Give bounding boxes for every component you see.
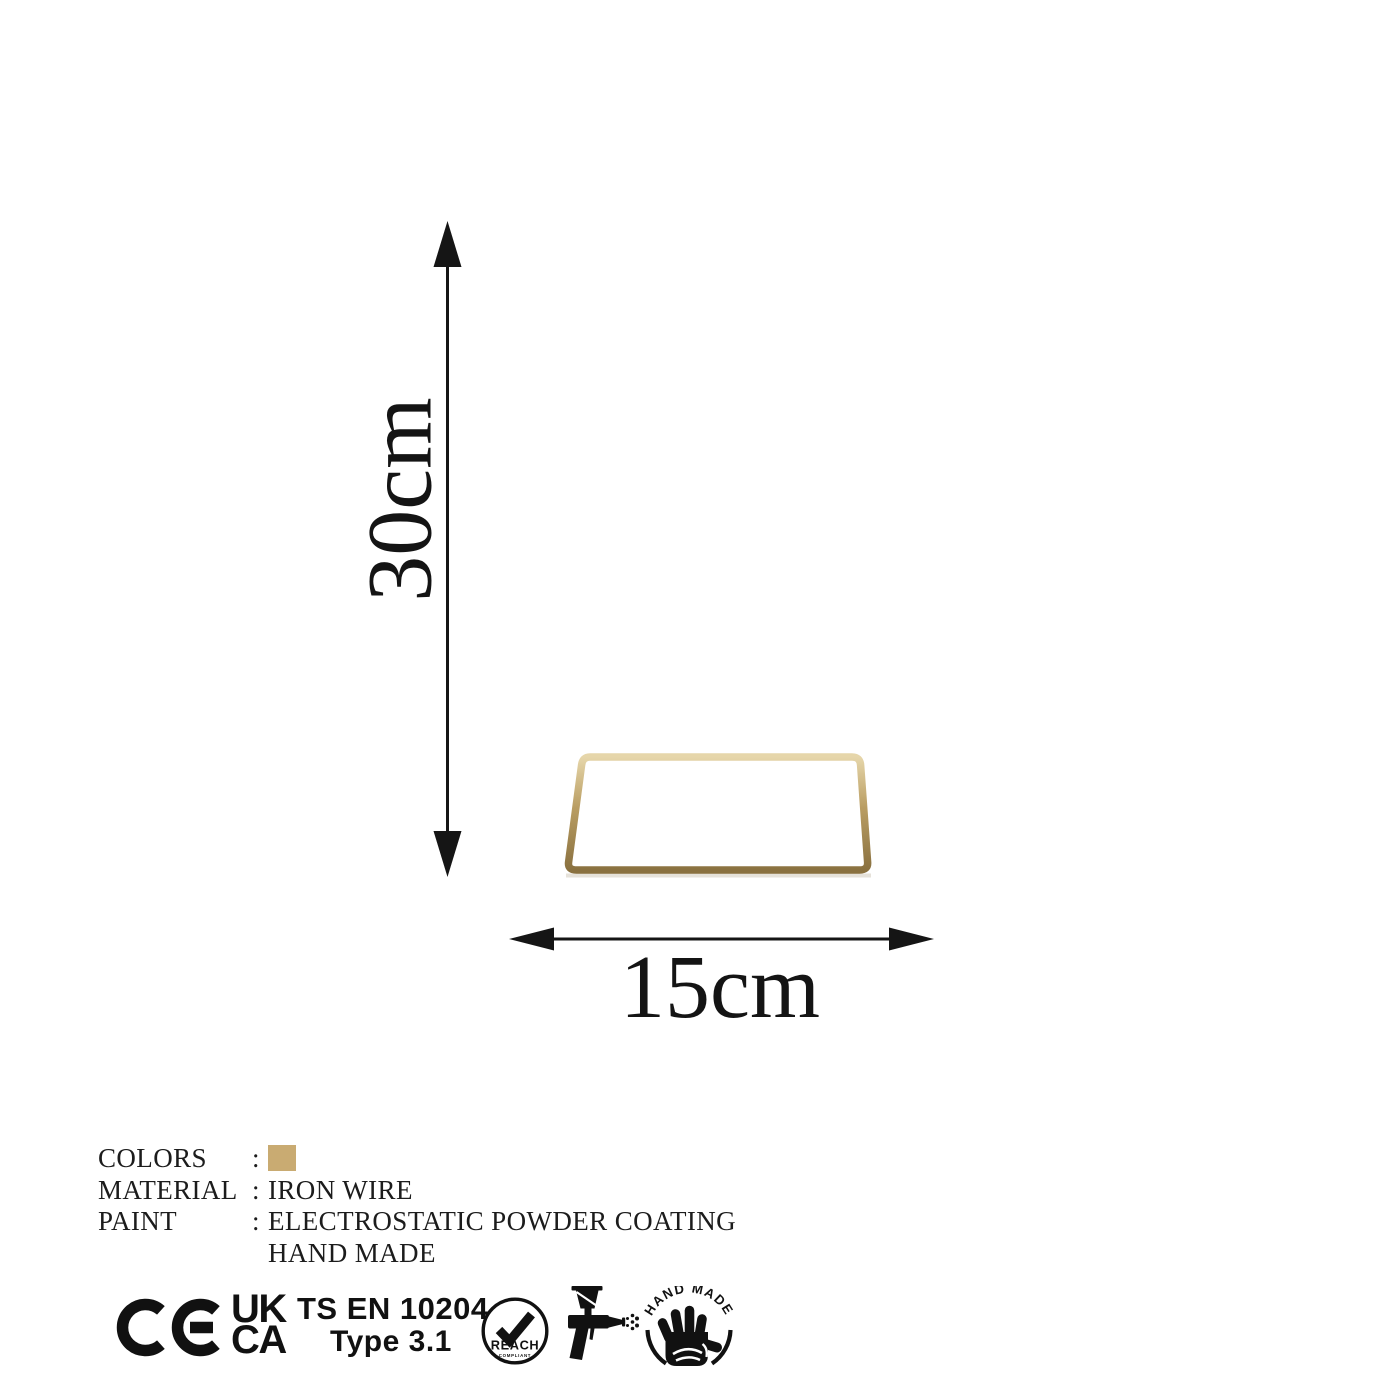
spec-row-material: MATERIAL : IRON WIRE: [98, 1175, 736, 1207]
spray-gun-icon: [557, 1285, 639, 1369]
ukca-line2: CA: [231, 1325, 286, 1356]
spec-colon: :: [252, 1175, 268, 1207]
spec-value-colors: [268, 1143, 736, 1175]
spec-value-paint: ELECTROSTATIC POWDER COATING: [268, 1206, 736, 1238]
spec-colon: :: [252, 1143, 268, 1175]
reach-compliant-badge: REACH COMPLIANT: [481, 1297, 549, 1365]
spec-label: PAINT: [98, 1206, 252, 1238]
spec-row-paint: PAINT : ELECTROSTATIC POWDER COATING: [98, 1206, 736, 1238]
color-swatch-gold: [268, 1145, 296, 1171]
reach-sub-label: COMPLIANT: [499, 1353, 531, 1358]
spec-block: COLORS : MATERIAL : IRON WIRE PAINT : EL…: [98, 1143, 736, 1269]
spec-row-paint-line2: HAND MADE: [98, 1238, 736, 1270]
spec-colon: :: [252, 1206, 268, 1238]
spec-value-material: IRON WIRE: [268, 1175, 736, 1207]
product-dimension-diagram: 30cm 15cm COLORS : MATERIAL : IRON WIRE …: [0, 0, 1400, 1400]
hand-made-badge: HAND MADE: [641, 1286, 737, 1382]
standard-certification-text: TS EN 10204 Type 3.1: [297, 1292, 489, 1358]
height-dimension-label: 30cm: [353, 330, 448, 670]
ukca-logo: UK CA: [231, 1294, 286, 1356]
reach-label: REACH: [491, 1338, 540, 1353]
spec-value-handmade: HAND MADE: [268, 1238, 736, 1270]
spec-label: MATERIAL: [98, 1175, 252, 1207]
ce-mark-logo: [116, 1298, 226, 1357]
standard-line1: TS EN 10204: [297, 1292, 489, 1325]
width-dimension-label: 15cm: [560, 942, 880, 1034]
spec-label: COLORS: [98, 1143, 252, 1175]
hand-icon: [663, 1311, 718, 1367]
ce-letter-c: [123, 1305, 161, 1351]
standard-line2: Type 3.1: [297, 1325, 489, 1358]
spec-row-colors: COLORS :: [98, 1143, 736, 1175]
